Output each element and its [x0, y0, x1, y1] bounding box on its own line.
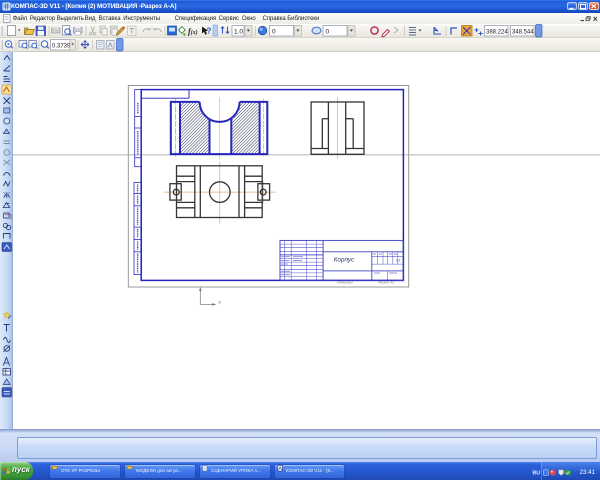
svg-text:388.224: 388.224 [486, 30, 508, 36]
svg-text:0: 0 [326, 29, 330, 36]
svg-text:0: 0 [272, 29, 276, 36]
svg-text:0.3739: 0.3739 [52, 43, 71, 49]
svg-text:f(x): f(x) [188, 27, 198, 36]
svg-text:Ж: Ж [3, 191, 11, 200]
svg-text:?: ? [207, 27, 212, 36]
svg-text:1.0: 1.0 [234, 29, 243, 36]
svg-text:x: x [218, 299, 222, 305]
svg-text:1:1: 1:1 [396, 259, 401, 263]
svg-text:Копировал: Копировал [337, 281, 353, 285]
svg-text:Формат А3: Формат А3 [378, 281, 394, 285]
svg-text:RU: RU [533, 471, 541, 477]
svg-text:348.544: 348.544 [512, 30, 534, 36]
svg-text:Корпус: Корпус [334, 257, 355, 264]
